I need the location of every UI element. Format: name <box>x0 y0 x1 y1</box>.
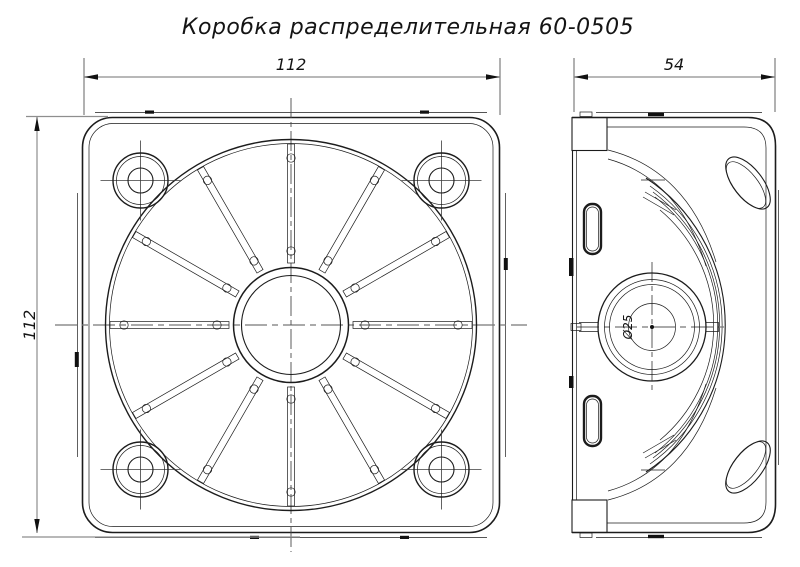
side-top-ellipse-inner <box>719 156 772 215</box>
boss-diameter-label: Ø25 <box>621 315 635 341</box>
dome-rim-arcs <box>641 178 725 472</box>
mounting-hole-top-left <box>101 141 181 221</box>
top-nub <box>145 111 154 114</box>
side-top-foot <box>580 112 592 117</box>
height-dim-label: 112 <box>20 310 39 341</box>
side-bottom-nub <box>648 535 664 538</box>
front-width-dimension: 112 <box>84 55 500 115</box>
drawing-title: Коробка распределительная 60-0505 <box>182 15 634 40</box>
left-edge-tick <box>75 352 79 367</box>
mounting-hole-bottom-left <box>101 430 181 510</box>
side-boss: Ø25 <box>571 262 726 392</box>
side-top-ellipse <box>717 150 778 217</box>
side-left-tick <box>569 258 574 276</box>
width-dim-label: 112 <box>276 55 307 74</box>
mounting-hole-top-right <box>402 141 482 221</box>
side-left-tick <box>569 376 574 388</box>
technical-drawing: Коробка распределительная 60-0505 <box>0 0 800 567</box>
front-centerlines <box>55 98 527 552</box>
side-bottom-ellipse <box>717 434 778 501</box>
side-depth-dimension: 54 <box>574 55 775 112</box>
knockout-slot-top-inner <box>587 207 599 251</box>
right-edge-tick <box>504 258 508 270</box>
side-top-nub <box>648 113 664 116</box>
top-nub <box>420 111 429 114</box>
side-outer-contour <box>572 118 776 533</box>
side-bottom-flange <box>572 500 607 533</box>
drawing-canvas: Коробка распределительная 60-0505 <box>0 0 800 567</box>
mounting-hole-bottom-right <box>402 430 482 510</box>
front-view <box>55 98 527 552</box>
side-view: Ø25 <box>569 112 779 538</box>
side-top-flange <box>572 118 607 151</box>
side-bottom-foot <box>580 533 592 538</box>
knockout-slot-bottom-inner <box>587 399 599 443</box>
front-height-dimension: 112 <box>20 117 300 538</box>
side-bottom-ellipse-inner <box>719 436 772 495</box>
bottom-nub <box>400 536 409 539</box>
depth-dim-label: 54 <box>664 55 684 74</box>
